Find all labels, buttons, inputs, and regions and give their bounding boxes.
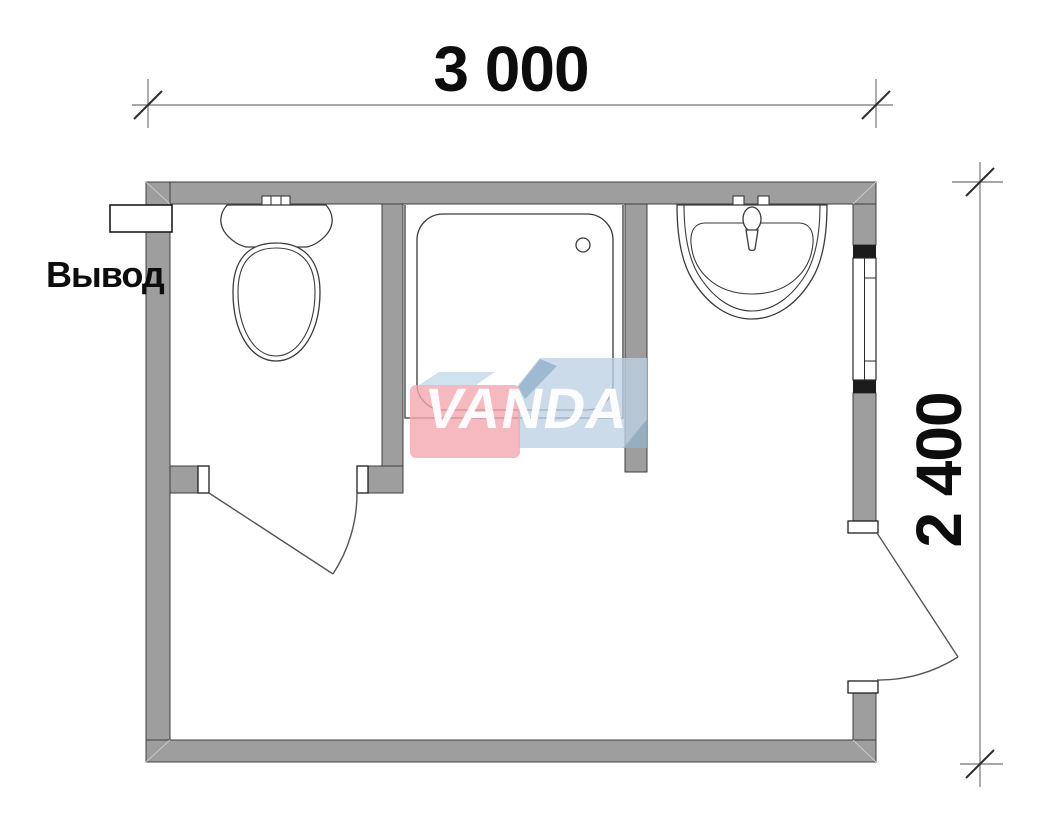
outlet-label: Вывод [46,257,164,293]
outlet-pipe [110,205,172,232]
exterior-door [877,533,958,680]
wall-right-upper [853,204,876,245]
door-jambs [198,466,878,693]
width-dimension-label: 3 000 [433,37,588,101]
faucet-head [743,207,761,231]
toilet-door-jamb-right [357,466,368,493]
interior-door-swing-arc [333,493,357,574]
partition-toilet-shower [382,204,403,493]
wall-right-lower [853,693,876,740]
partition-shower-sink [625,204,647,472]
wall-right-middle [853,393,876,521]
floor-plan-canvas: 3 000 2 400 Вывод VANDA [0,0,1054,818]
interior-door-leaf [209,493,333,574]
exterior-door-leaf [877,533,958,657]
window-cap-top [853,245,876,258]
shower-drain [576,238,590,252]
height-dimension-label: 2 400 [907,392,971,547]
toilet-room-south-wall-right [368,466,403,493]
toilet-tank [221,205,332,247]
washbasin-wall-bracket [758,196,769,205]
washbasin-wall-bracket [733,196,744,205]
window [853,245,876,393]
washbasin [677,196,827,319]
toilet [221,196,332,361]
exterior-door-jamb-bottom [848,681,878,693]
interior-door [209,493,357,574]
toilet-door-jamb-left [198,466,209,493]
exterior-door-swing-arc [877,657,958,680]
toilet-room-south-wall-left [170,466,198,493]
exterior-door-jamb-top [848,521,878,533]
wall-bottom [146,740,876,762]
window-cap-bottom [853,380,876,393]
toilet-flush-plate [262,196,290,205]
floor-plan-drawing [0,0,1054,818]
shower-tray [405,205,623,418]
